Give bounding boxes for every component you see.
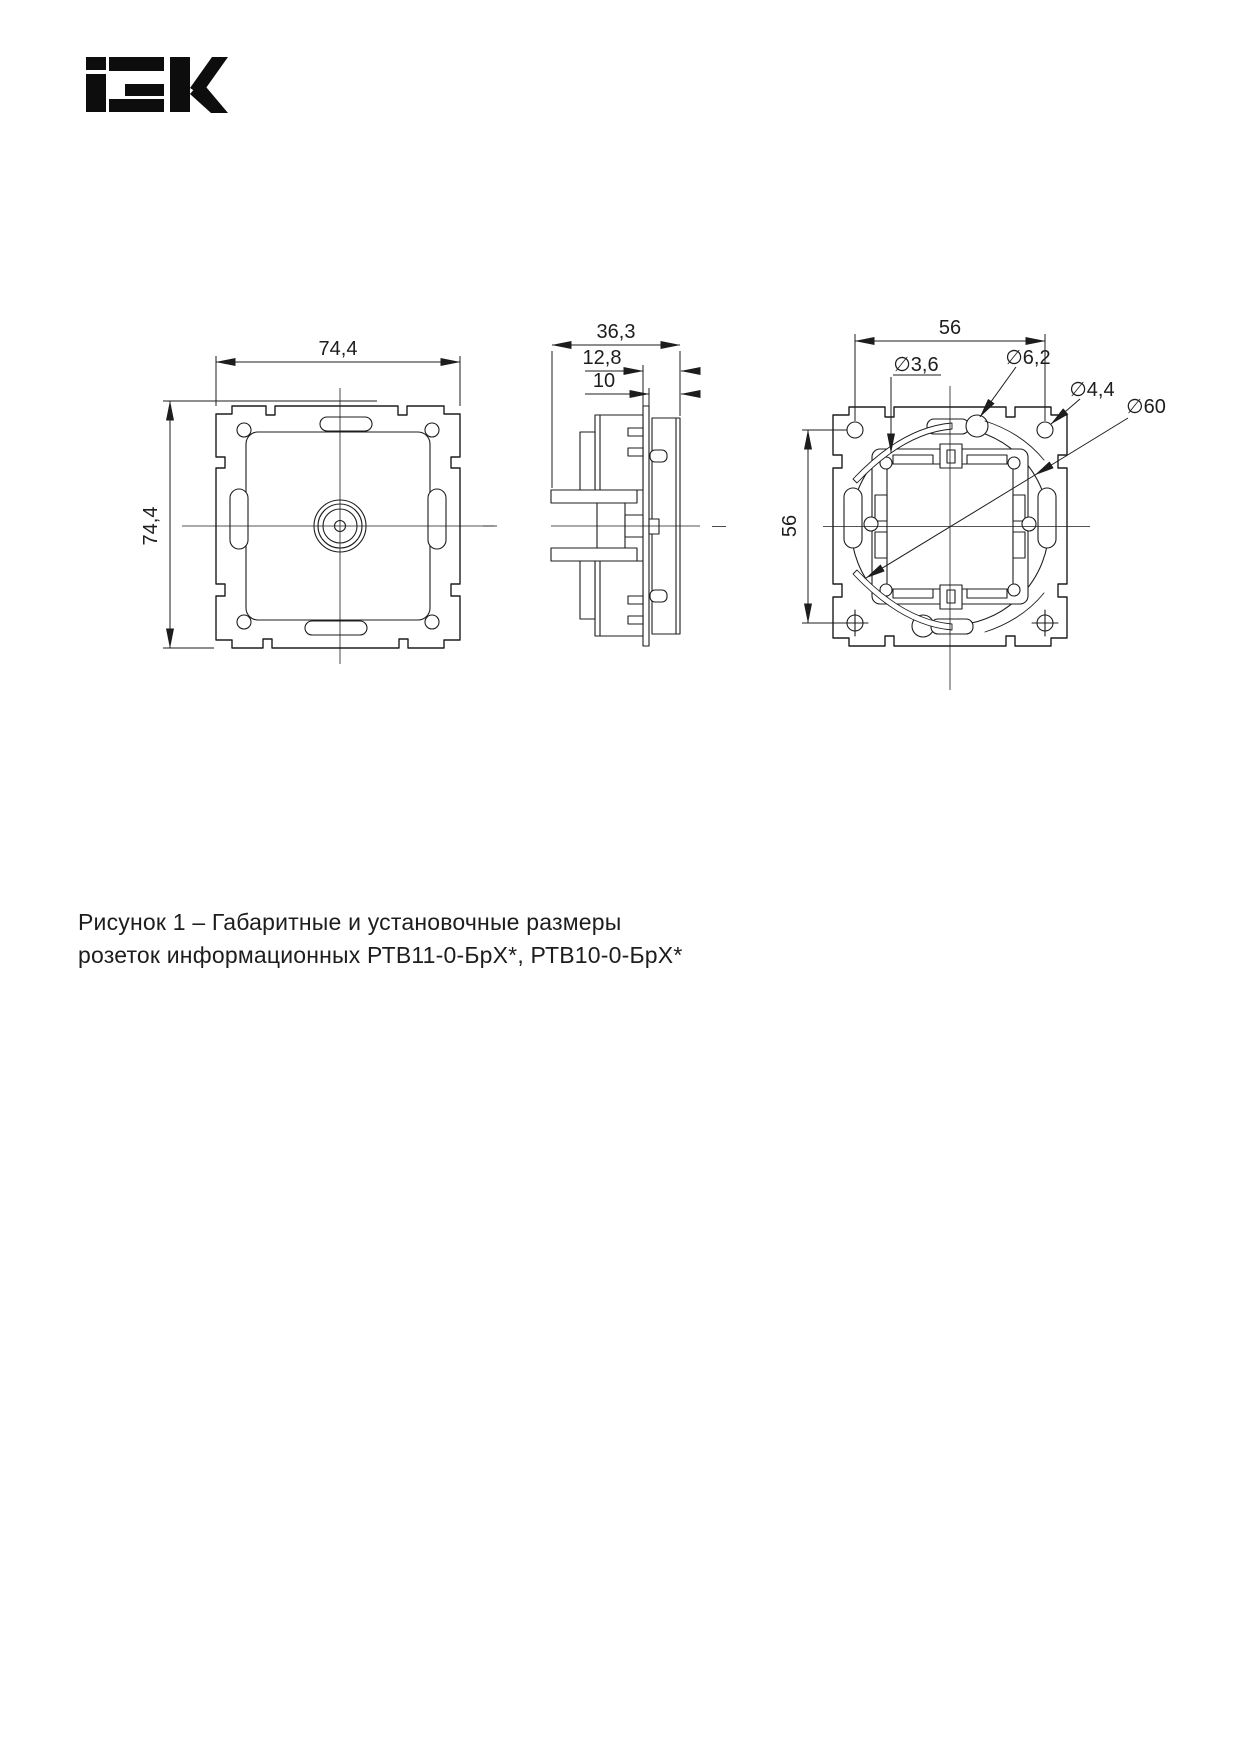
side-depth-total-dim-label: 36,3 [597, 321, 636, 343]
iek-logo-glyphs [86, 57, 228, 113]
dia-fixing-hole-label: ∅3,6 [893, 354, 938, 376]
document-page: 74,4 74,4 [0, 0, 1245, 1747]
front-view: 74,4 74,4 [140, 338, 494, 664]
back-hole-span-h-dim-label: 56 [939, 317, 961, 339]
side-depth-frame-dim-label: 10 [593, 370, 615, 392]
side-view: 36,3 12,8 10 [483, 321, 700, 646]
back-view: 56 56 ∅3,6 ∅6,2 ∅4,4 ∅60 [712, 317, 1166, 690]
back-hole-span-v-dim-label: 56 [779, 515, 801, 537]
figure-caption: Рисунок 1 – Габаритные и установочные ра… [78, 906, 682, 972]
front-height-dim-label: 74,4 [140, 507, 162, 546]
figure-caption-line1: Рисунок 1 – Габаритные и установочные ра… [78, 906, 682, 939]
figure-caption-line2: розеток информационных РТВ11-0-БрХ*, РТВ… [78, 939, 682, 972]
dia-slot-label: ∅6,2 [1005, 347, 1050, 369]
dia-claw-hole-label: ∅4,4 [1069, 379, 1114, 401]
iek-logo [85, 54, 235, 116]
dimension-drawing: 74,4 74,4 [0, 250, 1245, 720]
front-width-dim-label: 74,4 [319, 338, 358, 360]
side-depth-cover-dim-label: 12,8 [583, 347, 622, 369]
dia-mounting-circle-label: ∅60 [1126, 396, 1166, 418]
